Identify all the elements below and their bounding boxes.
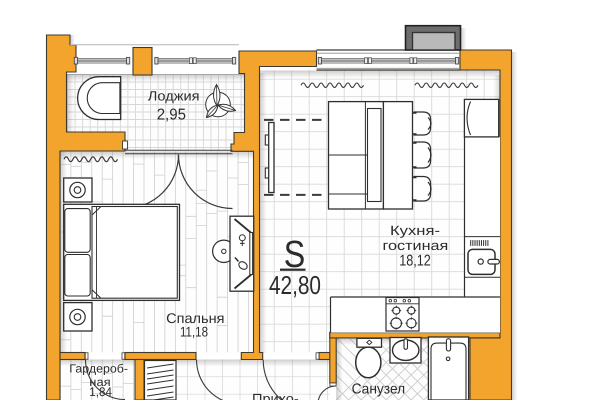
- svg-text:2,95: 2,95: [157, 107, 186, 124]
- svg-text:Прихо-: Прихо-: [252, 390, 299, 400]
- svg-text:Кухня-: Кухня-: [390, 223, 440, 238]
- svg-text:Гардероб-: Гардероб-: [69, 361, 128, 375]
- svg-text:Лоджия: Лоджия: [148, 88, 200, 103]
- svg-text:42,80: 42,80: [269, 270, 321, 300]
- svg-text:Санузел: Санузел: [352, 382, 406, 398]
- svg-text:18,12: 18,12: [399, 252, 431, 269]
- svg-text:гостиная: гостиная: [383, 238, 449, 253]
- svg-text:11,18: 11,18: [180, 323, 208, 339]
- svg-text:1,84: 1,84: [89, 385, 112, 399]
